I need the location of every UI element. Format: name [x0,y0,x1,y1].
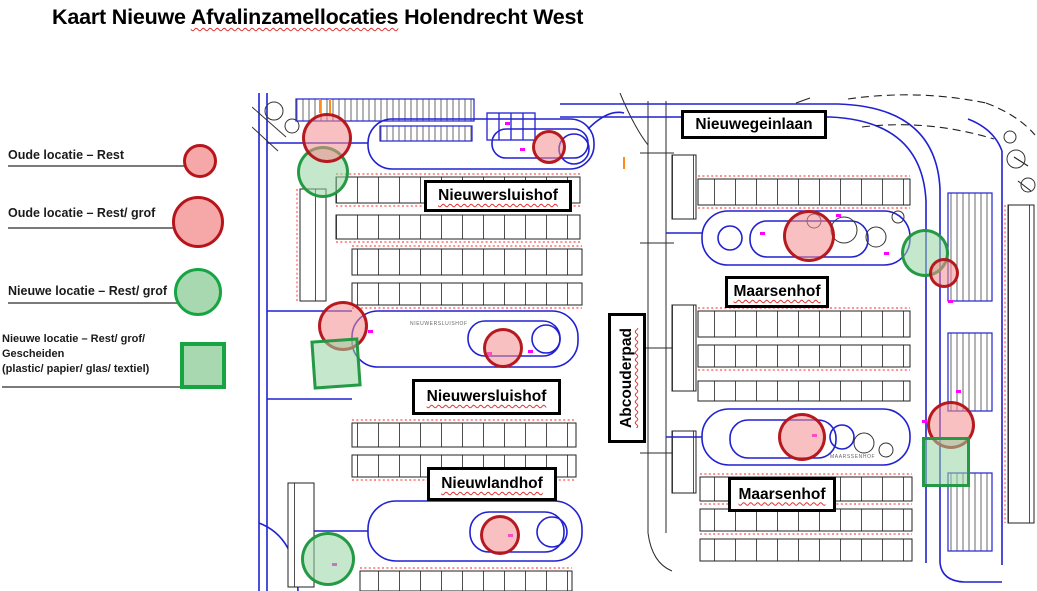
street-micro-label: MAARSSENHOF [830,454,875,460]
marker-new-location-gescheiden [922,437,970,487]
legend-label-line2: Gescheiden [2,347,149,362]
street-label-abcouderpad: Abcouderpad [608,313,646,443]
street-label-nieuwersluishof: Nieuwersluishof [424,180,572,212]
street-label-text: Nieuwersluishof [427,388,547,406]
marker-old-location-rest-grof [302,113,352,163]
street-label-text: Nieuwlandhof [441,475,543,493]
legend-label-line1: Nieuwe locatie – Rest/ grof/ [2,332,149,347]
street-label-maarsenhof: Maarsenhof [725,276,829,308]
map-overlay: MAARSSENHOFNIEUWERSLUISHOFNieuwegeinlaan… [252,93,1037,591]
street-label-text: Nieuwersluishof [438,187,558,205]
street-label-text: Maarsenhof [739,486,826,504]
marker-old-location-rest [532,130,566,164]
legend-label-oude-rest-grof: Oude locatie – Rest/ grof [8,206,155,220]
legend-leader-line [8,227,198,229]
marker-new-location-gescheiden [310,337,361,389]
street-label-text: Maarsenhof [734,283,821,301]
street-label-nieuwlandhof: Nieuwlandhof [427,467,557,501]
page-title: Kaart Nieuwe Afvalinzamellocaties Holend… [52,5,583,30]
marker-old-location-rest-grof [778,413,826,461]
title-suffix: Holendrecht West [398,5,583,29]
page: Kaart Nieuwe Afvalinzamellocaties Holend… [0,0,1037,591]
street-micro-label: NIEUWERSLUISHOF [410,321,468,327]
street-label-maarsenhof: Maarsenhof [728,477,836,512]
legend-leader-line [2,386,182,388]
legend-symbol-oude-rest-grof [172,196,224,248]
marker-old-location-rest [480,515,520,555]
street-label-text: Abcouderpad [618,328,636,428]
legend-leader-line [8,165,200,167]
title-misspelled-word: Afvalinzamellocaties [191,5,399,29]
legend-label-oude-rest: Oude locatie – Rest [8,148,124,162]
legend-label-nieuwe-gescheiden: Nieuwe locatie – Rest/ grof/ Gescheiden … [2,332,149,377]
street-label-nieuwegeinlaan: Nieuwegeinlaan [681,110,827,139]
title-prefix: Kaart Nieuwe [52,5,191,29]
legend-symbol-oude-rest [183,144,217,178]
marker-old-location-rest [483,328,523,368]
legend-label-line3: (plastic/ papier/ glas/ textiel) [2,362,149,377]
legend-leader-line [8,302,198,304]
legend-label-nieuwe-rest-grof: Nieuwe locatie – Rest/ grof [8,284,167,298]
legend-symbol-nieuwe-rest-grof [174,268,222,316]
marker-new-location-rest-grof [301,532,355,586]
map-area: MAARSSENHOFNIEUWERSLUISHOFNieuwegeinlaan… [252,93,1037,591]
marker-old-location-rest-grof [783,210,835,262]
street-label-text: Nieuwegeinlaan [695,116,812,134]
legend-symbol-nieuwe-gescheiden [180,342,226,389]
marker-old-location-rest [929,258,959,288]
street-label-nieuwersluishof: Nieuwersluishof [412,379,561,415]
